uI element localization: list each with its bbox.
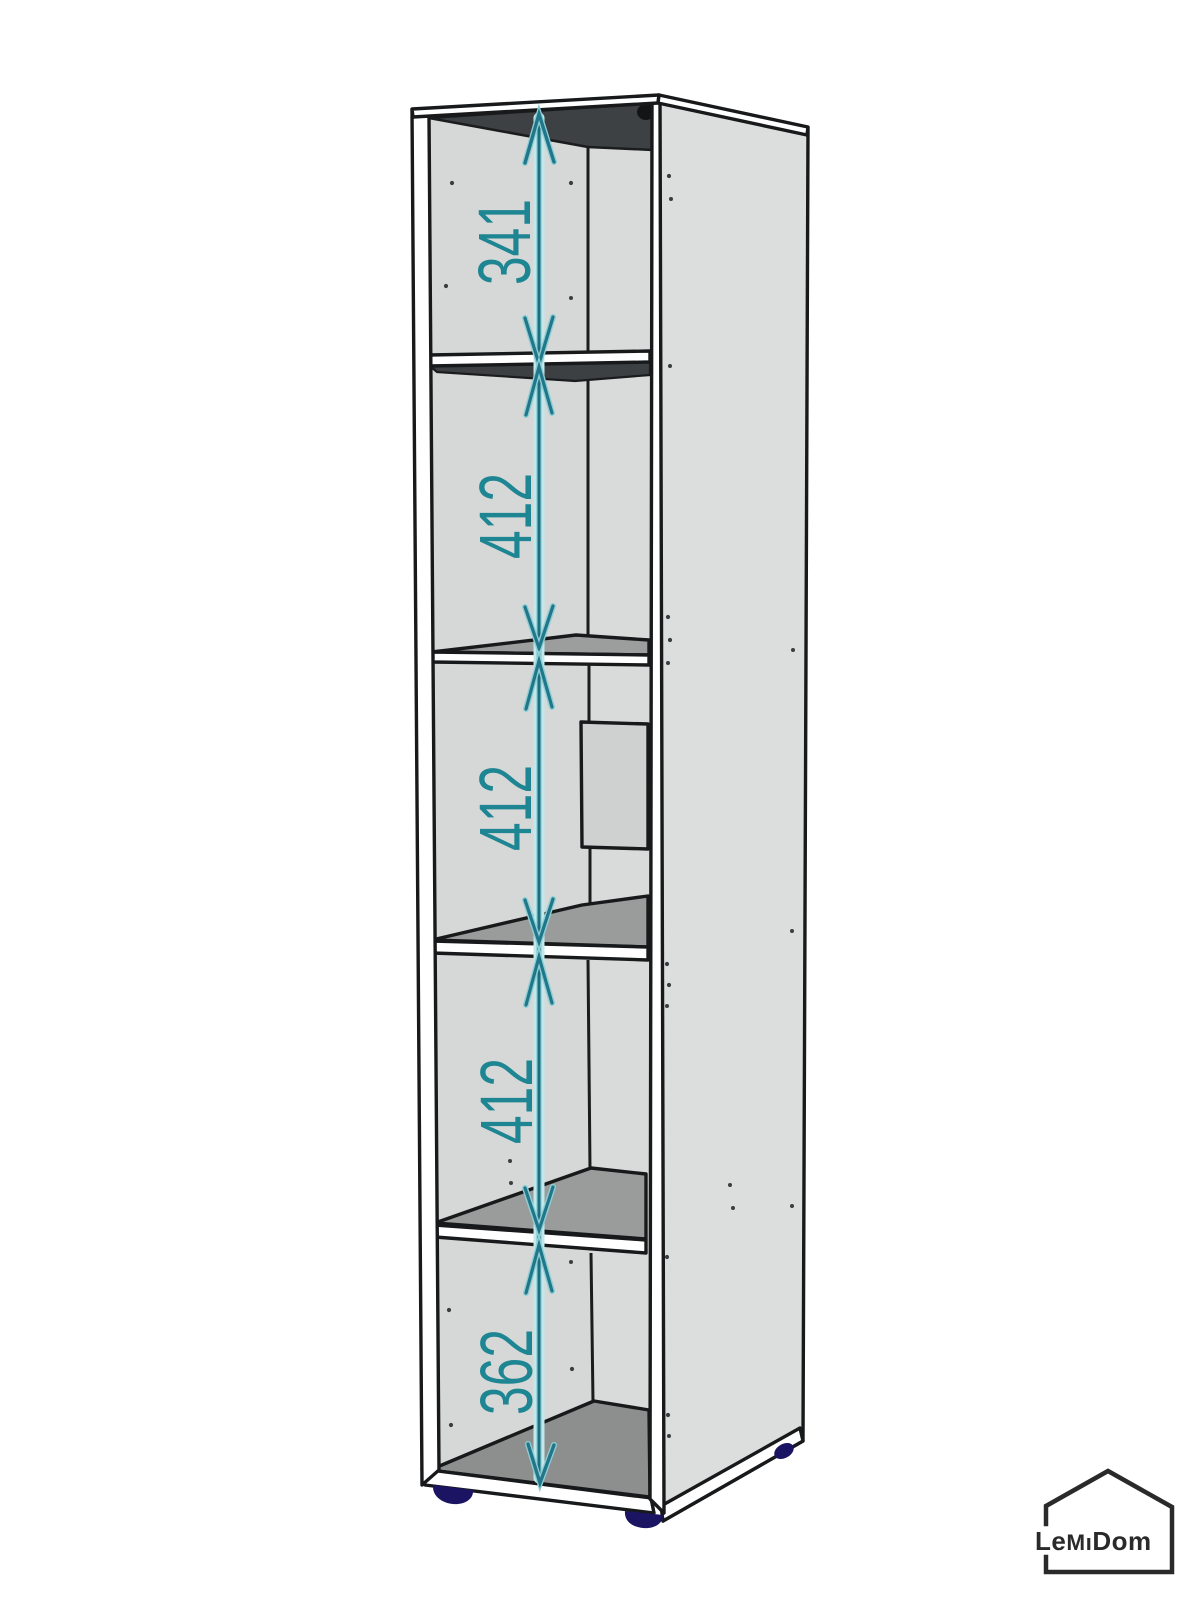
- svg-text:341: 341: [463, 199, 546, 285]
- svg-text:412: 412: [465, 1058, 548, 1144]
- svg-text:362: 362: [465, 1329, 548, 1415]
- svg-text:412: 412: [464, 765, 547, 851]
- svg-text:412: 412: [464, 473, 547, 559]
- svg-text:LeMıDom: LeMıDom: [1035, 1526, 1152, 1556]
